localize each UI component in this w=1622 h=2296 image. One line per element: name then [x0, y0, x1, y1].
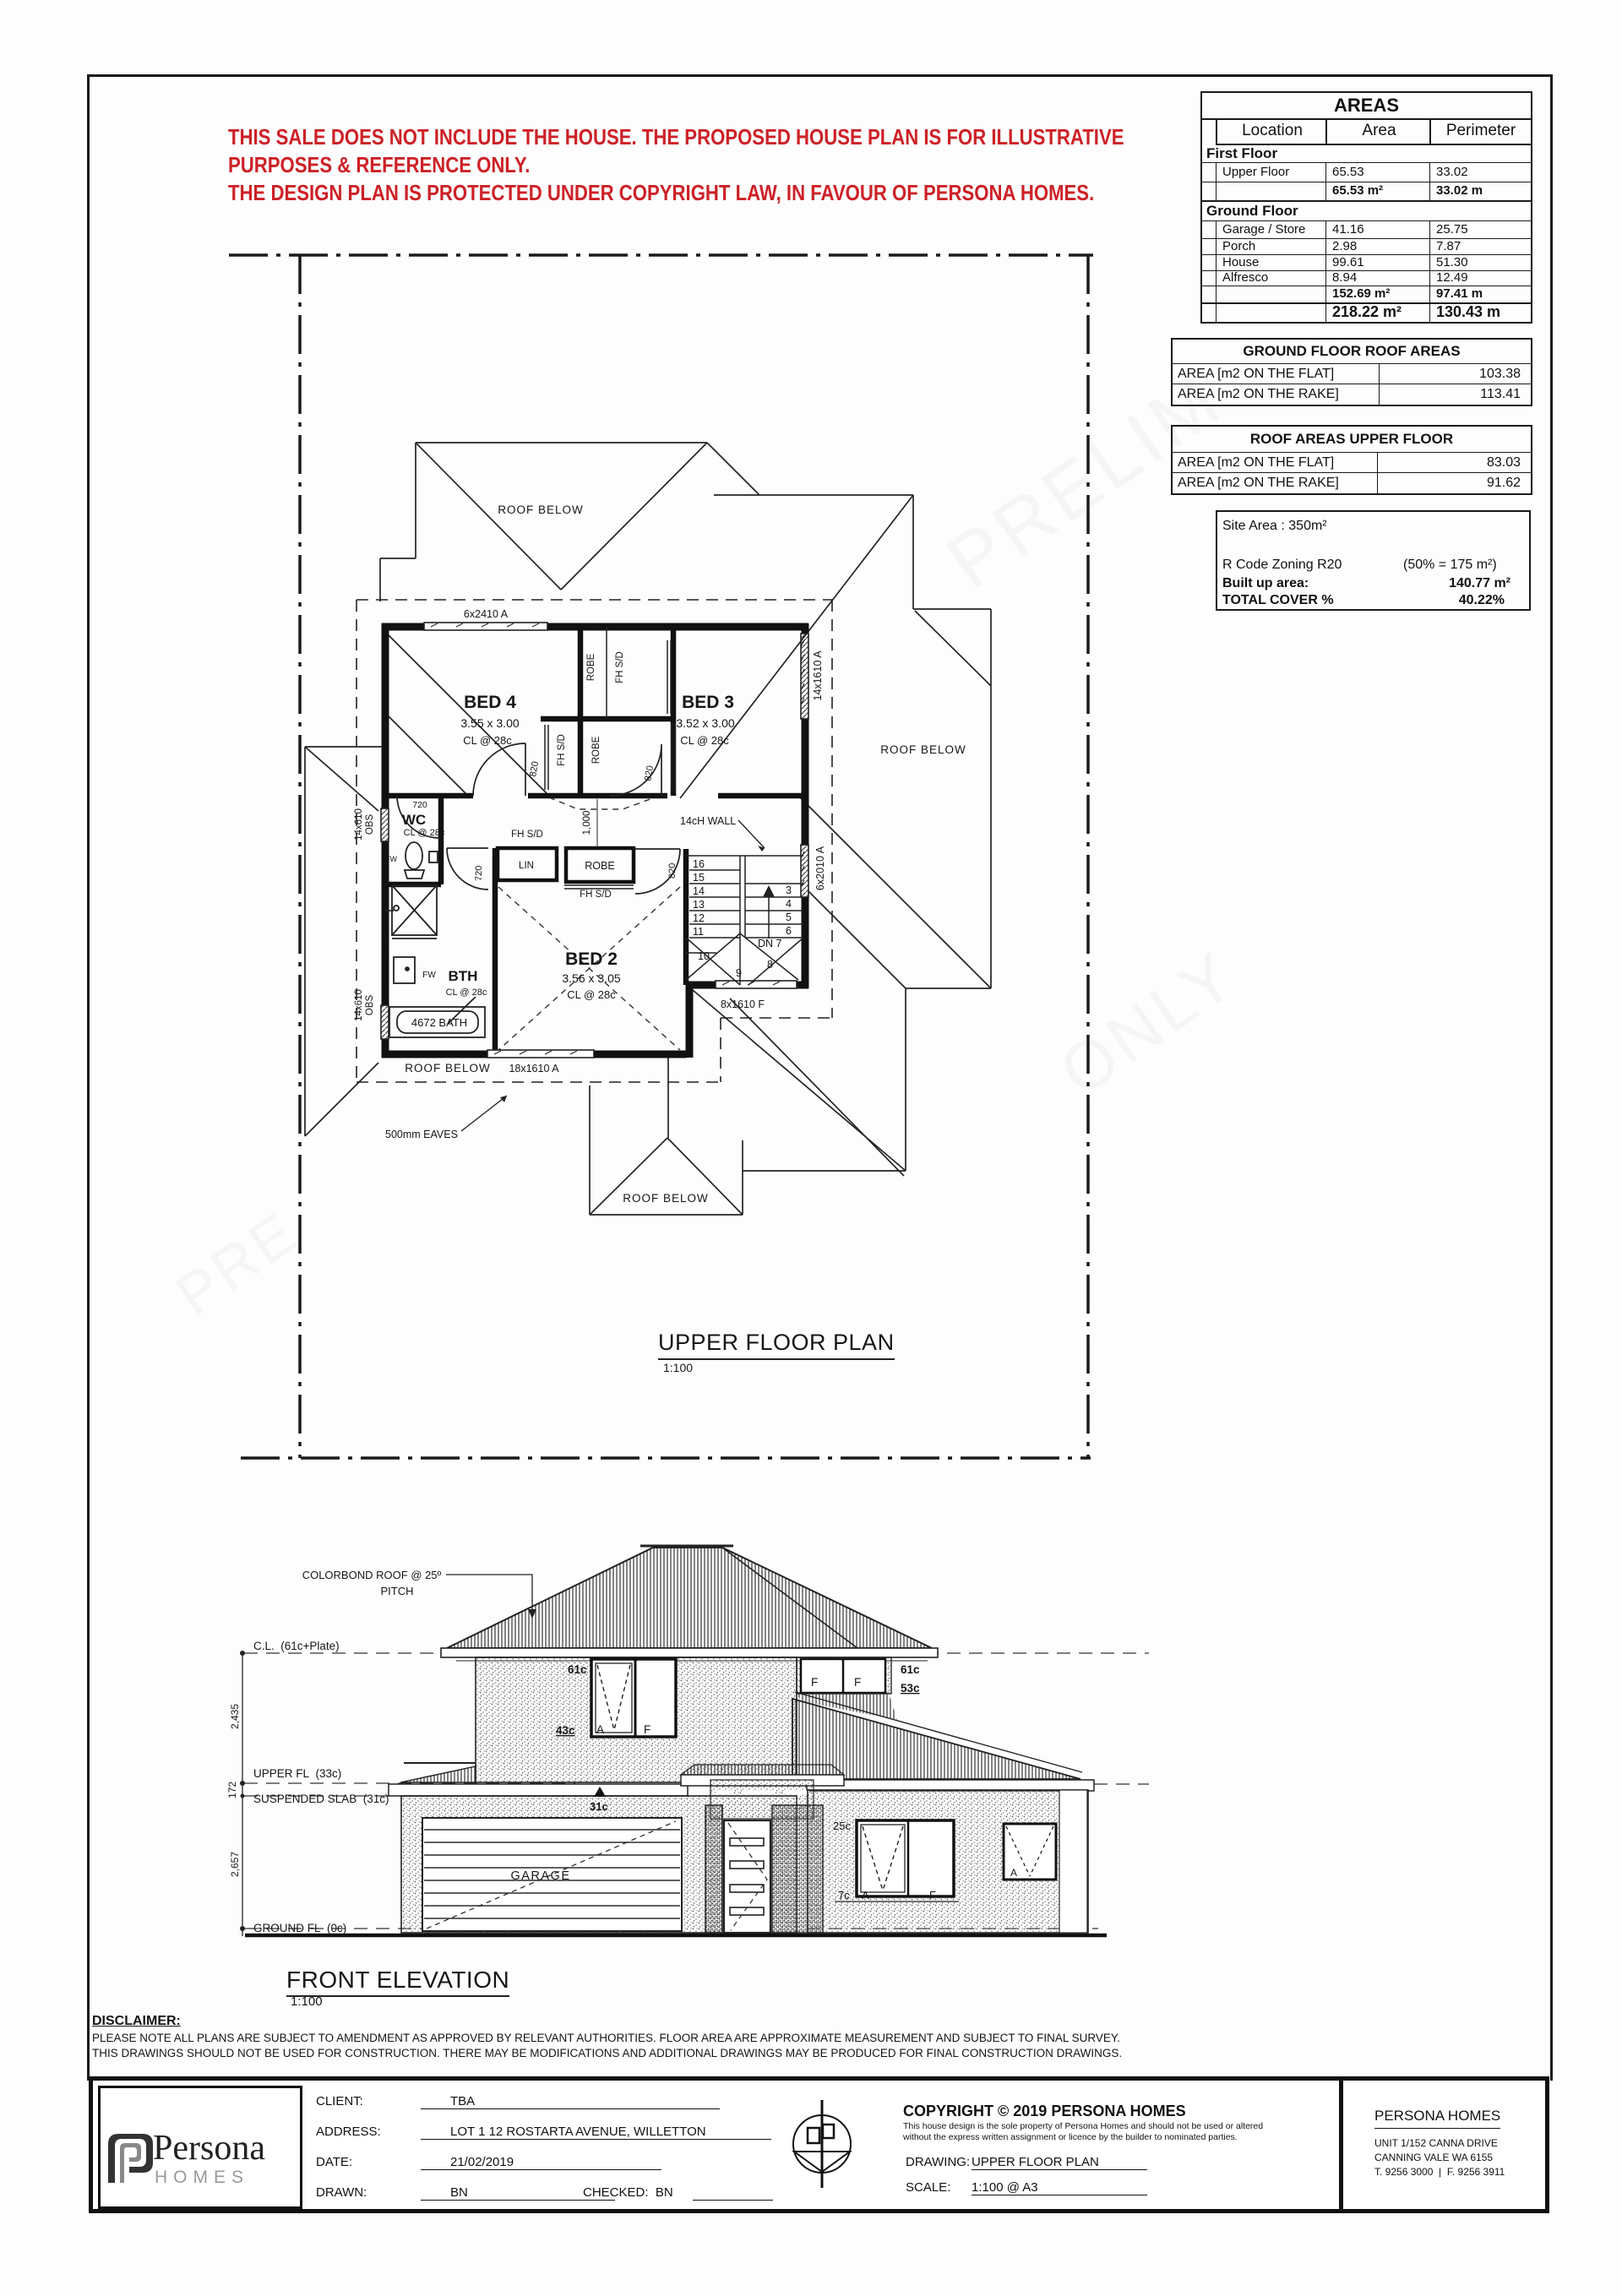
svg-text:11: 11 [693, 926, 704, 938]
svg-text:F: F [854, 1676, 861, 1689]
svg-text:61c: 61c [568, 1663, 587, 1676]
svg-text:F: F [644, 1723, 650, 1736]
svg-text:16: 16 [693, 858, 705, 870]
svg-text:C.L. (61c+Plate): C.L. (61c+Plate) [253, 1640, 340, 1652]
svg-text:ROOF BELOW: ROOF BELOW [498, 503, 584, 516]
svg-text:31c: 31c [590, 1800, 608, 1813]
svg-text:OBS: OBS [365, 995, 375, 1016]
svg-text:CL @ 28c: CL @ 28c [463, 734, 512, 747]
svg-text:A: A [1010, 1867, 1017, 1879]
svg-text:6x2410 A: 6x2410 A [464, 608, 509, 620]
svg-text:14: 14 [693, 885, 705, 897]
svg-text:BTH: BTH [449, 968, 478, 984]
svg-text:ROOF BELOW: ROOF BELOW [405, 1062, 491, 1075]
svg-text:CL @ 28c: CL @ 28c [446, 987, 487, 998]
svg-text:18x1610 A: 18x1610 A [509, 1063, 559, 1075]
svg-text:3.56 x 3.05: 3.56 x 3.05 [562, 971, 620, 985]
svg-text:7c: 7c [838, 1889, 850, 1902]
svg-text:500mm EAVES: 500mm EAVES [385, 1129, 458, 1140]
svg-text:13: 13 [693, 899, 705, 911]
svg-text:SUSPENDED SLAB (31c): SUSPENDED SLAB (31c) [253, 1793, 389, 1805]
svg-text:14x610: 14x610 [354, 808, 364, 841]
svg-text:COLORBOND ROOF @ 25º: COLORBOND ROOF @ 25º [302, 1569, 442, 1581]
svg-text:A: A [596, 1723, 604, 1736]
svg-text:PITCH: PITCH [381, 1585, 414, 1597]
svg-text:CL @ 28c: CL @ 28c [680, 734, 729, 747]
svg-text:3.55 x 3.00: 3.55 x 3.00 [460, 716, 519, 730]
svg-text:F: F [811, 1676, 818, 1689]
svg-text:OBS: OBS [365, 814, 375, 835]
svg-text:BED 2: BED 2 [565, 949, 618, 969]
svg-text:61c: 61c [901, 1663, 920, 1676]
svg-text:BED 3: BED 3 [682, 693, 734, 712]
svg-text:6: 6 [786, 925, 792, 937]
svg-text:FW: FW [385, 855, 397, 863]
svg-text:WC: WC [402, 812, 426, 828]
svg-text:9: 9 [736, 967, 742, 979]
svg-text:Persona: Persona [153, 2129, 265, 2168]
svg-text:14x610: 14x610 [354, 989, 364, 1021]
svg-text:172: 172 [226, 1782, 238, 1798]
svg-text:1,000: 1,000 [582, 811, 592, 835]
svg-text:5: 5 [786, 911, 792, 923]
svg-text:820: 820 [667, 863, 678, 879]
svg-text:F: F [929, 1889, 936, 1902]
svg-text:GROUND FL (0c): GROUND FL (0c) [253, 1922, 346, 1934]
svg-text:CL @ 28c: CL @ 28c [404, 828, 445, 838]
svg-text:LIN: LIN [519, 861, 534, 871]
svg-text:720: 720 [474, 866, 484, 881]
svg-text:FW: FW [422, 971, 436, 980]
svg-text:ROBE: ROBE [585, 860, 614, 872]
svg-text:ROOF BELOW: ROOF BELOW [880, 743, 966, 756]
svg-text:HOMES: HOMES [155, 2168, 249, 2187]
svg-text:3: 3 [786, 884, 792, 896]
svg-text:FH S/D: FH S/D [580, 890, 612, 900]
svg-text:15: 15 [693, 872, 705, 884]
svg-text:DN 7: DN 7 [758, 938, 782, 949]
svg-text:ROBE: ROBE [591, 736, 601, 764]
svg-text:4: 4 [786, 898, 792, 910]
svg-text:FH S/D: FH S/D [615, 651, 625, 683]
svg-text:12: 12 [693, 912, 705, 924]
svg-text:8x1610 F: 8x1610 F [721, 998, 765, 1010]
svg-text:10: 10 [698, 950, 710, 962]
svg-text:UPPER FL (33c): UPPER FL (33c) [253, 1767, 341, 1780]
svg-text:A: A [862, 1889, 869, 1902]
svg-text:ONLY: ONLY [1047, 936, 1250, 1110]
svg-text:PRE: PRE [164, 1199, 309, 1328]
svg-text:720: 720 [412, 800, 427, 810]
svg-text:25c: 25c [833, 1820, 851, 1832]
svg-text:3.52 x 3.00: 3.52 x 3.00 [676, 716, 734, 730]
svg-text:2,657: 2,657 [229, 1852, 241, 1877]
svg-text:FH S/D: FH S/D [511, 830, 543, 840]
svg-text:ROBE: ROBE [586, 653, 596, 681]
svg-text:GARAGE: GARAGE [510, 1869, 570, 1883]
svg-text:14x1610 A: 14x1610 A [812, 650, 824, 701]
svg-text:6x2010 A: 6x2010 A [814, 846, 826, 890]
svg-text:2,435: 2,435 [229, 1704, 241, 1729]
svg-text:43c: 43c [556, 1724, 575, 1737]
svg-text:ROOF BELOW: ROOF BELOW [623, 1192, 709, 1205]
svg-text:14cH WALL: 14cH WALL [680, 815, 736, 827]
svg-text:FH S/D: FH S/D [557, 734, 567, 766]
svg-text:53c: 53c [901, 1682, 920, 1695]
svg-text:8: 8 [767, 959, 773, 971]
svg-text:820: 820 [528, 760, 541, 777]
svg-text:BED 4: BED 4 [464, 693, 516, 712]
svg-text:4672 BATH: 4672 BATH [411, 1016, 467, 1029]
svg-text:CL @ 28c: CL @ 28c [567, 988, 616, 1001]
svg-text:820: 820 [643, 764, 656, 781]
